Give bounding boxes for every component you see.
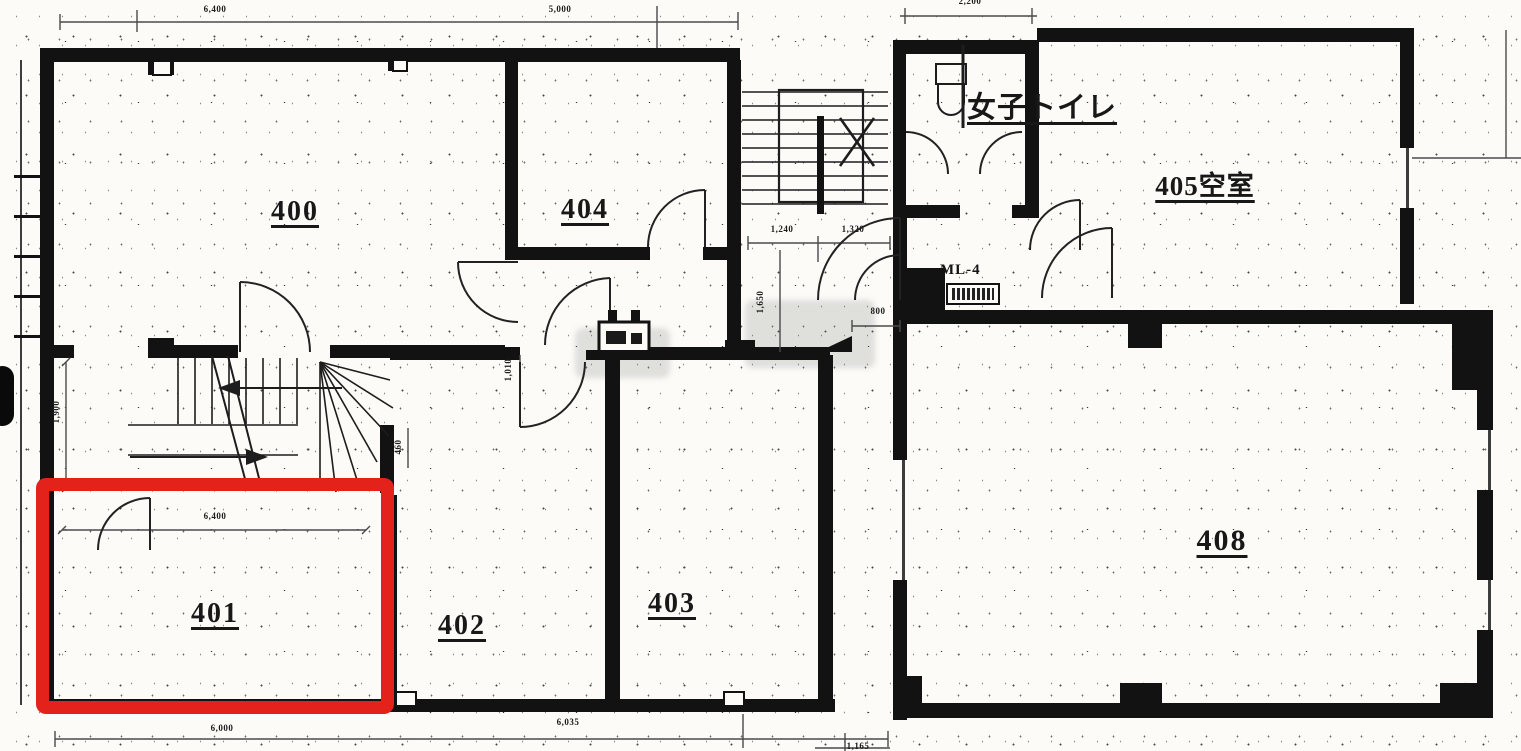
dim-hall-height: 1,010 (503, 359, 513, 382)
toilet-fixtures (936, 45, 966, 128)
dim-stair-right: 1,320 (842, 224, 865, 234)
left-edge-marker (0, 366, 14, 426)
dim-stair-left: 1,240 (771, 224, 794, 234)
dim-bottom-mid: 6,035 (557, 717, 580, 727)
l4-panel-icon (586, 310, 662, 360)
dim-top-left: 6,400 (204, 4, 227, 14)
room-label-405: 405空室 (1155, 164, 1255, 203)
dim-lobby: 800 (871, 306, 886, 316)
floor-plan: 400 404 405空室 女子トイレ 401 402 403 408 ML-4… (0, 0, 1521, 751)
staircase-upper (742, 90, 888, 204)
ml4-label: ML-4 (940, 262, 981, 279)
dim-top-mid: 5,000 (549, 4, 572, 14)
room-label-401: 401 (191, 598, 239, 630)
dim-top-right: 2,200 (959, 0, 982, 6)
wall-taper (818, 336, 852, 352)
room-label-408: 408 (1197, 524, 1248, 558)
dim-niche: 460 (393, 440, 403, 455)
room-label-403: 403 (648, 588, 696, 620)
stair-arrow-down (246, 449, 268, 465)
dim-corridor-height: 1,650 (755, 291, 765, 314)
dim-room401-width: 6,400 (204, 511, 227, 521)
stair-center-rail (817, 116, 824, 214)
ml4-panel-box (946, 283, 1000, 305)
room-label-404: 404 (561, 194, 609, 226)
room-label-400: 400 (271, 196, 319, 228)
room-label-womens-toilet: 女子トイレ (967, 84, 1117, 126)
dim-bottom-right: 1,165 (847, 741, 870, 751)
dim-bottom-left: 6,000 (211, 723, 234, 733)
room-label-402: 402 (438, 610, 486, 642)
dim-left-height: 1,900 (51, 401, 61, 424)
staircase-left (128, 356, 342, 490)
staircase-winder (320, 362, 393, 492)
